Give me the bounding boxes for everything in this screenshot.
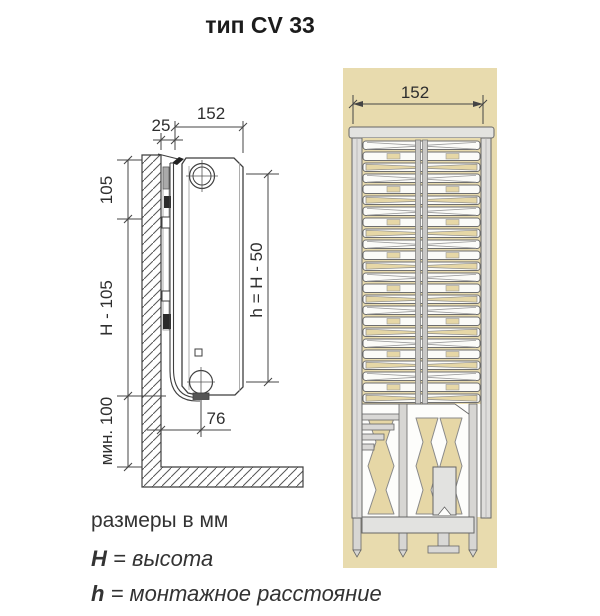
center-mullion: [416, 140, 421, 404]
dim-connection-offset-label: 76: [207, 409, 226, 428]
radiator-top-cap: [349, 127, 494, 138]
front-width-label: 152: [401, 83, 429, 102]
legend-mount-key: h: [91, 581, 104, 606]
dim-top-offset-label: 105: [97, 176, 116, 204]
dim-wall-gap: [153, 133, 183, 150]
radiator-grille: [362, 138, 481, 404]
legend-units-note: размеры в мм: [91, 509, 382, 533]
legend-mount-rest: = монтажное расстояние: [104, 581, 381, 606]
side-view: 152 25 105 H - 105 мин. 100: [97, 104, 303, 487]
dim-mid-height-label: H - 105: [97, 280, 116, 336]
dim-wall-gap-label: 25: [152, 116, 171, 135]
radiator-side-profile: [170, 158, 243, 401]
dim-depth-label: 152: [197, 104, 225, 123]
vent-square: [195, 349, 202, 356]
legend-mount-term: h = монтажное расстояние: [91, 581, 382, 607]
mounting-bracket: [158, 154, 184, 330]
legend-height-term: H = высота: [91, 546, 382, 572]
dim-min-clearance-label: мин. 100: [97, 397, 116, 465]
front-view: 152: [343, 68, 497, 568]
dim-depth: [171, 121, 247, 153]
legend-height-key: H: [91, 546, 107, 571]
legend-height-rest: = высота: [107, 546, 213, 571]
dim-mounting-height-label: h = H - 50: [247, 242, 266, 317]
